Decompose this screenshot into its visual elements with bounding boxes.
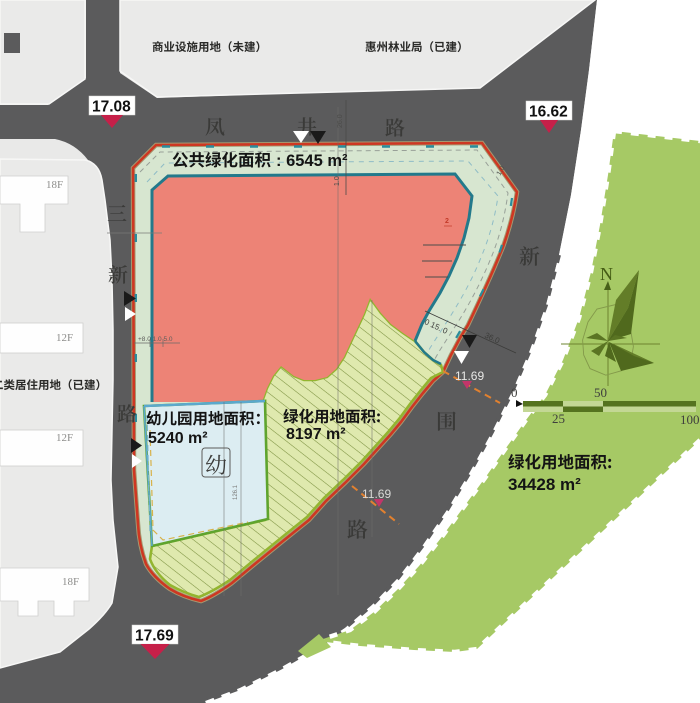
- svg-text:18F: 18F: [62, 576, 79, 588]
- svg-text:26.0: 26.0: [337, 114, 344, 128]
- svg-text:11.69: 11.69: [455, 369, 484, 383]
- svg-text:12F: 12F: [56, 332, 73, 344]
- svg-text:8197 m²: 8197 m²: [286, 426, 346, 443]
- svg-text:126.1: 126.1: [233, 484, 239, 500]
- svg-text:0: 0: [511, 385, 518, 400]
- svg-text:16.62: 16.62: [529, 104, 568, 121]
- svg-text:12F: 12F: [56, 432, 73, 444]
- svg-text:5240 m²: 5240 m²: [148, 430, 208, 447]
- svg-text:17.08: 17.08: [92, 99, 131, 116]
- svg-text:34428 m²: 34428 m²: [508, 475, 581, 494]
- svg-text:50: 50: [594, 385, 607, 400]
- svg-text:17.69: 17.69: [135, 628, 174, 645]
- svg-text:25: 25: [552, 411, 565, 426]
- svg-text:2: 2: [445, 218, 449, 225]
- svg-text:1.0: 1.0: [334, 176, 341, 186]
- svg-text:+8.0 1.0 5.0: +8.0 1.0 5.0: [138, 336, 173, 343]
- svg-text:N: N: [600, 264, 613, 284]
- svg-text:: 6545 m²: : 6545 m²: [276, 152, 348, 170]
- svg-text:18F: 18F: [46, 179, 63, 191]
- svg-text:100: 100: [680, 412, 700, 427]
- svg-text:11.69: 11.69: [362, 487, 391, 501]
